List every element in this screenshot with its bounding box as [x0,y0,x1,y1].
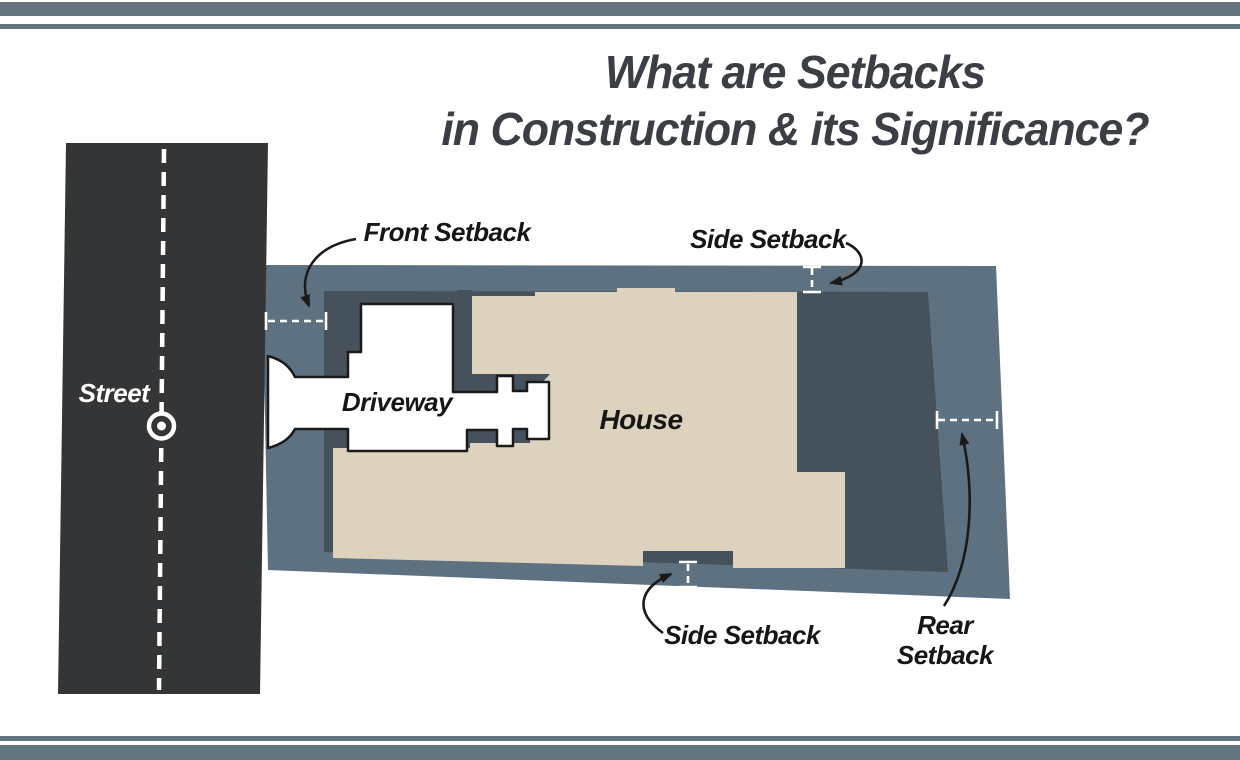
front-setback-label: Front Setback [364,217,533,247]
street-label: Street [79,378,152,408]
setback-diagram: Front Setback Side Setback Side Setback … [0,0,1240,760]
street-group [58,143,268,694]
driveway-label: Driveway [342,387,454,417]
house-label: House [599,404,682,435]
bottom-border-thick-bar [0,745,1240,760]
side-setback-bottom-label: Side Setback [664,620,822,650]
rear-setback-label-line2: Setback [897,640,995,670]
rear-setback-label-line1: Rear [917,610,975,640]
bottom-border-thin-bar [0,736,1240,741]
side-setback-top-label: Side Setback [690,224,848,254]
street-marker-dot-icon [157,422,166,431]
